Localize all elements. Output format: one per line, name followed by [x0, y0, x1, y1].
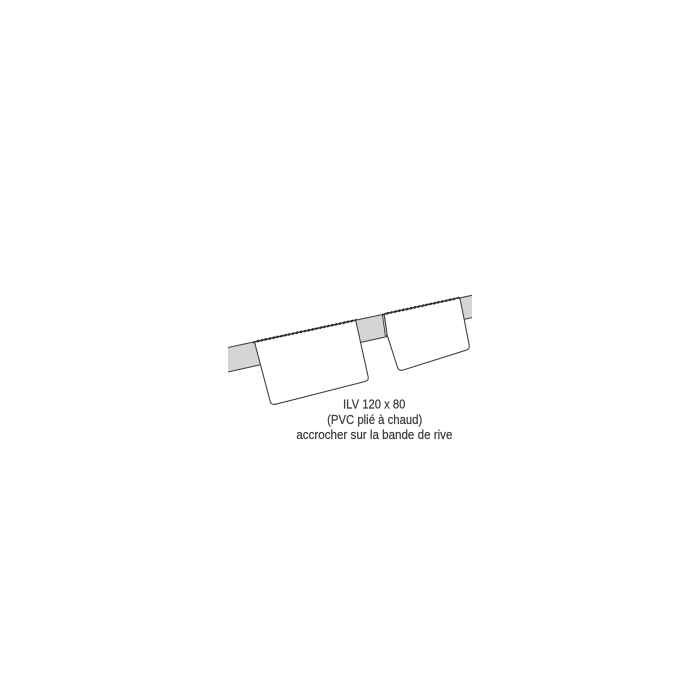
svg-text:ILV 120 x 80: ILV 120 x 80: [343, 396, 405, 411]
svg-text:(PVC plié à chaud): (PVC plié à chaud): [327, 412, 422, 427]
svg-text:accrocher sur la bande de rive: accrocher sur la bande de rive: [296, 427, 452, 442]
